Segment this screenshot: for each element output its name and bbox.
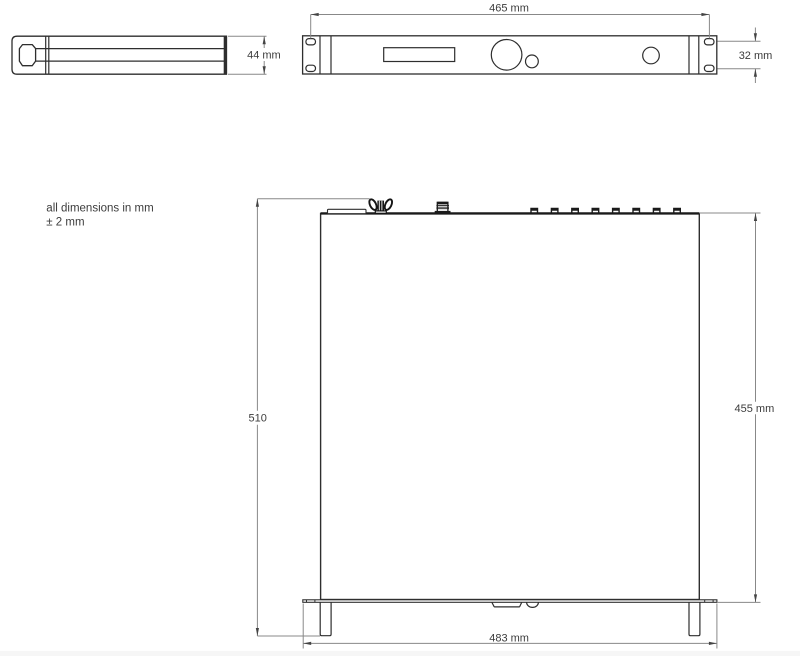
svg-text:483 mm: 483 mm [489, 632, 529, 644]
svg-text:32 mm: 32 mm [739, 50, 773, 62]
svg-text:± 2 mm: ± 2 mm [46, 216, 84, 228]
svg-text:455 mm: 455 mm [735, 403, 775, 415]
svg-text:all dimensions in mm: all dimensions in mm [46, 202, 153, 214]
svg-text:510: 510 [249, 413, 267, 425]
svg-text:465 mm: 465 mm [489, 2, 529, 14]
svg-text:44 mm: 44 mm [247, 50, 281, 62]
